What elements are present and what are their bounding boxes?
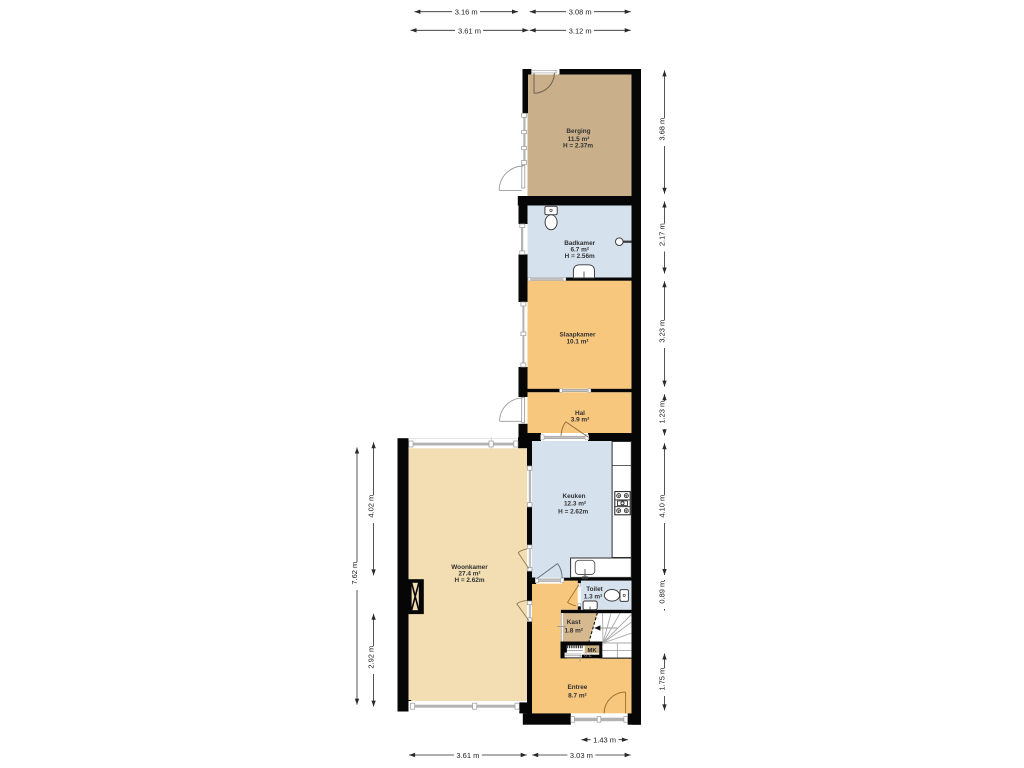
svg-text:2.92 m: 2.92 m [367,646,376,669]
svg-text:1.3 m²: 1.3 m² [584,594,602,601]
svg-text:Berging: Berging [566,128,590,135]
svg-text:H = 2.62m: H = 2.62m [454,577,484,584]
svg-text:H = 2.37m: H = 2.37m [563,143,593,150]
svg-text:1.23 m: 1.23 m [658,401,667,424]
svg-text:H = 2.56m: H = 2.56m [565,253,595,260]
svg-text:1.75 m: 1.75 m [658,668,667,691]
svg-text:Kast: Kast [567,619,582,626]
svg-text:4.10 m: 4.10 m [658,495,667,518]
svg-text:3.61 m: 3.61 m [458,26,481,35]
svg-text:3.23 m: 3.23 m [658,320,667,343]
svg-text:3.08 m: 3.08 m [569,8,592,17]
svg-text:Slaapkamer: Slaapkamer [560,331,596,338]
svg-text:3.68 m: 3.68 m [658,118,667,141]
svg-text:1.8 m²: 1.8 m² [564,628,582,635]
svg-text:0.89 m: 0.89 m [658,581,667,604]
svg-text:3.61 m: 3.61 m [456,751,479,760]
svg-text:3.03 m: 3.03 m [570,751,593,760]
svg-text:2.17 m: 2.17 m [658,223,667,246]
svg-text:3.16 m: 3.16 m [455,8,478,17]
svg-text:Keuken: Keuken [562,493,585,500]
svg-text:4.02 m: 4.02 m [367,495,376,518]
svg-text:H = 2.62m: H = 2.62m [558,509,588,516]
svg-text:3.12 m: 3.12 m [569,26,592,35]
svg-text:Toilet: Toilet [586,586,603,593]
svg-text:12.3 m²: 12.3 m² [564,501,586,508]
svg-text:1.43 m: 1.43 m [593,736,616,745]
svg-text:3.9 m²: 3.9 m² [571,416,589,423]
svg-text:7.62 m: 7.62 m [350,562,359,585]
svg-text:Entree: Entree [567,684,587,691]
svg-text:8.7 m²: 8.7 m² [568,693,586,700]
svg-text:10.1 m²: 10.1 m² [566,339,588,346]
svg-text:0.2: 0.2 [584,653,592,659]
